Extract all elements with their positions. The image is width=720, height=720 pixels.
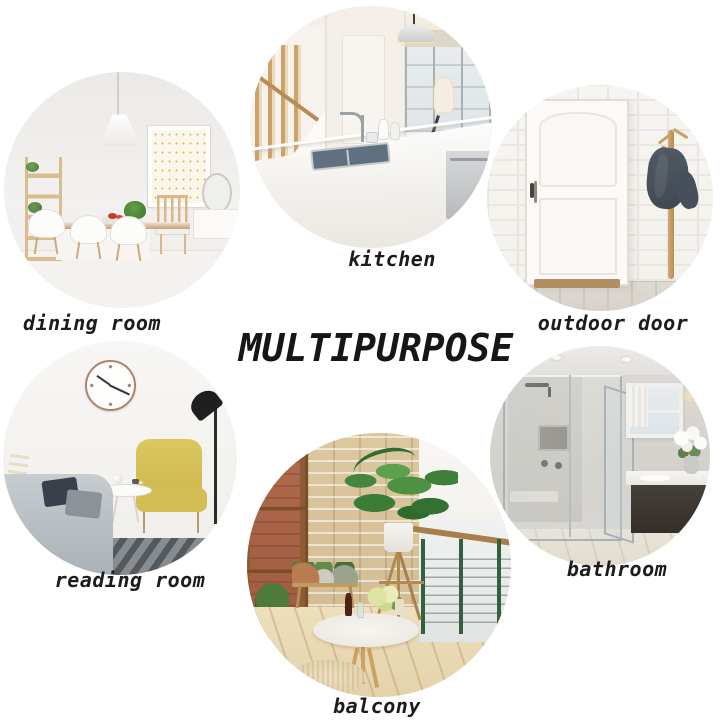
white-chair [110,216,147,245]
collage-title: MULTIPURPOSE [239,326,514,370]
coat-rack-hook [673,128,689,140]
white-flowers [670,425,707,458]
round-table [313,613,419,647]
window-curtain [629,386,649,428]
table-lamp [113,474,123,484]
door-lock-plate [534,181,537,203]
recessed-light [552,355,561,360]
round-stool [292,660,366,694]
recessed-light [622,357,631,362]
doormat [534,279,620,288]
wine-bottle [345,593,352,616]
outdoor-door-photo [487,85,713,311]
multipurpose-collage: dining room kitchen outdoor door reading… [0,0,720,720]
vanity-cabinet [631,485,710,533]
white-bottle [378,119,389,140]
floor-lamp-pole [214,407,217,524]
faucet [340,112,365,142]
gray-pillow [65,489,103,518]
label-balcony: balcony [333,694,421,718]
window-brick-view [250,451,300,631]
reading-room-photo [3,341,237,575]
door-top-panel [539,112,617,187]
flower-vase [684,456,699,474]
white-planter [384,523,413,552]
shelf-plant [26,162,39,172]
armchair-legs [143,512,198,533]
bathroom-photo [490,346,710,566]
floor-lamp-head [186,386,224,423]
plant-bench [292,583,358,587]
window-mullion [247,507,305,510]
vanity-sink [640,475,671,482]
cactus-pots [292,562,361,583]
sideboard [193,209,240,239]
cup [132,479,139,484]
label-outdoor-door: outdoor door [538,311,689,335]
wall-sconce [684,390,696,402]
white-chair [28,209,65,238]
table-lamp [434,79,453,113]
jar [395,599,404,615]
bathroom-ceiling [490,346,710,375]
pendant-lamp-chain [413,6,415,25]
glass-panel-seam [569,375,571,538]
balcony-photo [247,433,511,697]
label-dining-room: dining room [23,311,161,335]
plant-stand-strut [379,581,424,584]
door-bottom-panel [539,198,617,275]
pendant-lamp-cord [117,72,119,117]
front-door [525,99,628,286]
cup [366,132,378,143]
wall-clock [85,360,136,411]
railing-posts [421,539,505,634]
white-chair [70,215,107,244]
round-mirror [202,173,232,212]
dining-room-photo [4,72,240,308]
kitchen-photo [250,6,492,248]
label-reading-room: reading room [55,568,206,592]
label-kitchen: kitchen [348,247,436,271]
wine-glass [357,602,364,618]
pendant-lamp [100,114,140,145]
label-bathroom: bathroom [567,557,667,581]
dishwasher [446,151,492,219]
apples [108,213,117,219]
white-bottle [390,122,400,140]
pendant-lamp-shade [398,24,434,42]
